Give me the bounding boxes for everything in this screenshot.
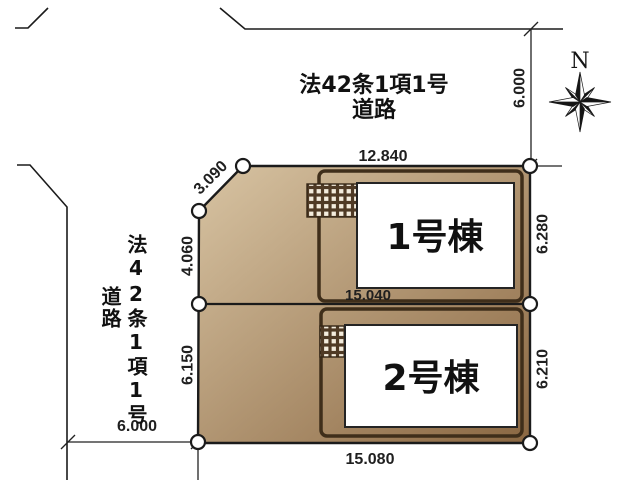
road-edge-left (17, 165, 67, 480)
dim-top-road-width: 6.000 (511, 68, 528, 108)
road-edge-top (220, 8, 563, 29)
top-road-label-line1: 法42条1項1号 (274, 74, 474, 99)
dim-lot2-depth-right: 6.210 (534, 349, 551, 389)
north-compass-icon: N (549, 49, 611, 132)
road-edge-top-left-corner (15, 8, 48, 28)
building-2-label: 2号棟 (382, 358, 480, 399)
site-plan: 1号棟 2号棟 12.840 6.000 6.280 6.210 15.040 … (0, 0, 617, 480)
dim-lot2-width-bottom: 15.080 (346, 451, 395, 468)
dim-lot1-depth-right: 6.280 (534, 214, 551, 254)
hatch-area-lot-1 (307, 184, 357, 217)
building-1-label: 1号棟 (386, 217, 484, 258)
top-road-label: 法42条1項1号 道路 (274, 74, 474, 123)
dim-left-lower: 6.150 (179, 345, 196, 385)
dim-left-upper: 4.060 (179, 236, 196, 276)
top-road-label-line2: 道路 (274, 99, 474, 124)
left-road-label-suffix: 道路 (99, 286, 121, 330)
north-letter: N (570, 49, 589, 74)
dim-lot1-width-bottom: 15.040 (345, 287, 391, 304)
plot-map: 1号棟 2号棟 12.840 6.000 6.280 6.210 15.040 … (0, 0, 617, 480)
left-road-label: 法42条1項1号 (125, 234, 147, 426)
dim-top-frontage: 12.840 (359, 148, 408, 165)
